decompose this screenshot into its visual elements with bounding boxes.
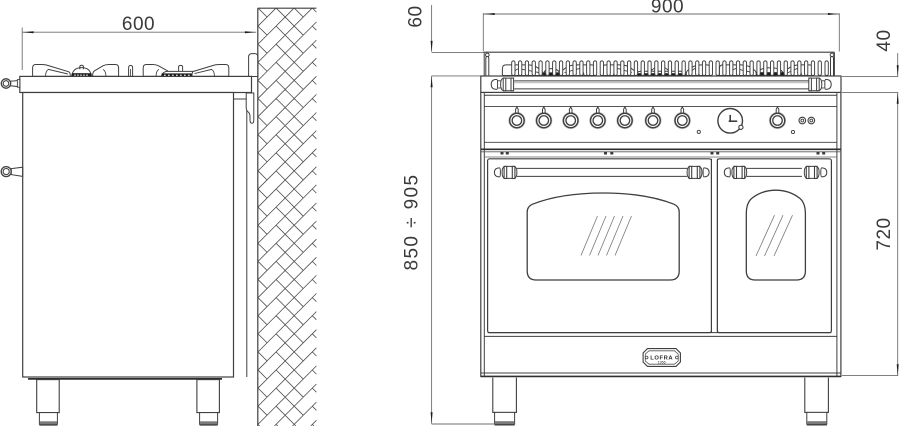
svg-text:720: 720: [874, 217, 895, 250]
svg-text:1956: 1956: [658, 361, 666, 365]
svg-text:900: 900: [651, 0, 684, 18]
svg-text:60: 60: [406, 5, 427, 27]
svg-text:850 ÷ 905: 850 ÷ 905: [402, 174, 423, 271]
svg-text:600: 600: [122, 14, 155, 35]
svg-text:40: 40: [874, 29, 895, 51]
